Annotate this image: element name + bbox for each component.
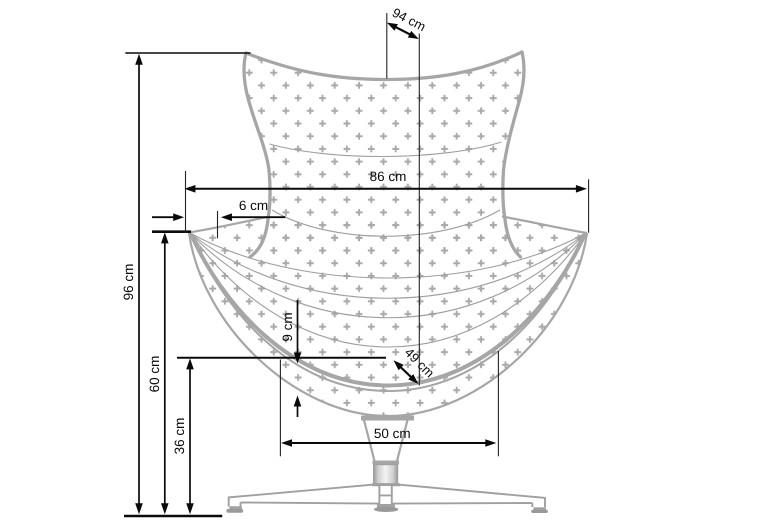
svg-text:60 cm: 60 cm [147,356,162,393]
svg-text:6 cm: 6 cm [239,198,268,213]
svg-text:50 cm: 50 cm [374,426,411,441]
svg-text:96 cm: 96 cm [121,264,136,301]
svg-text:36 cm: 36 cm [172,418,187,455]
svg-text:86 cm: 86 cm [370,169,407,184]
svg-text:9 cm: 9 cm [280,312,295,341]
svg-text:94 cm: 94 cm [390,5,428,34]
